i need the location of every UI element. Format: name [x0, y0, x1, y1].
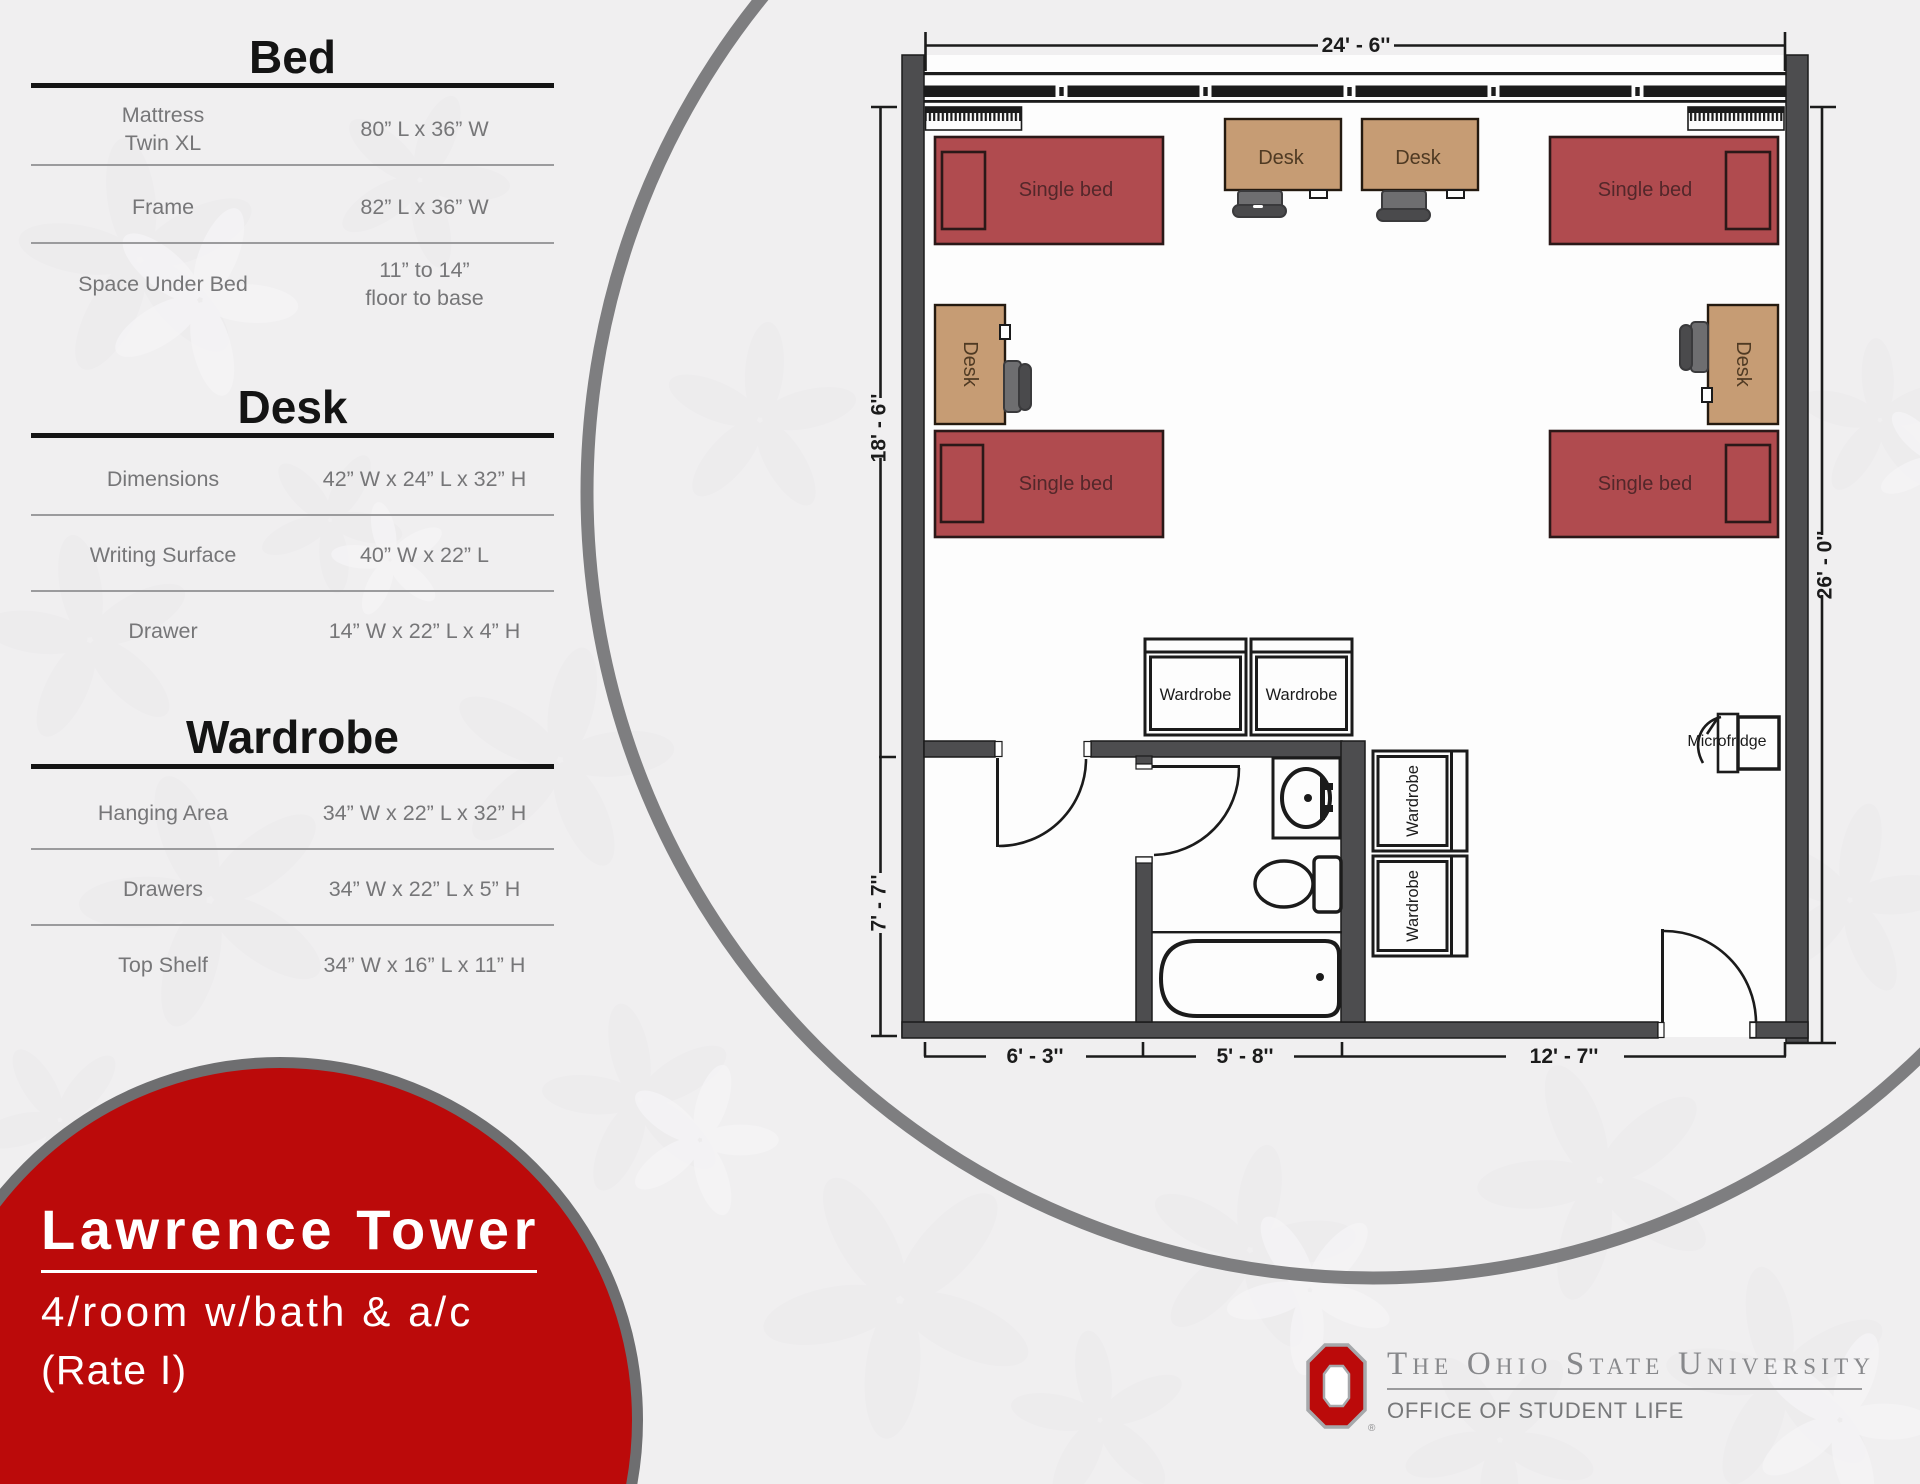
svg-text:®: ®: [1368, 1423, 1376, 1434]
